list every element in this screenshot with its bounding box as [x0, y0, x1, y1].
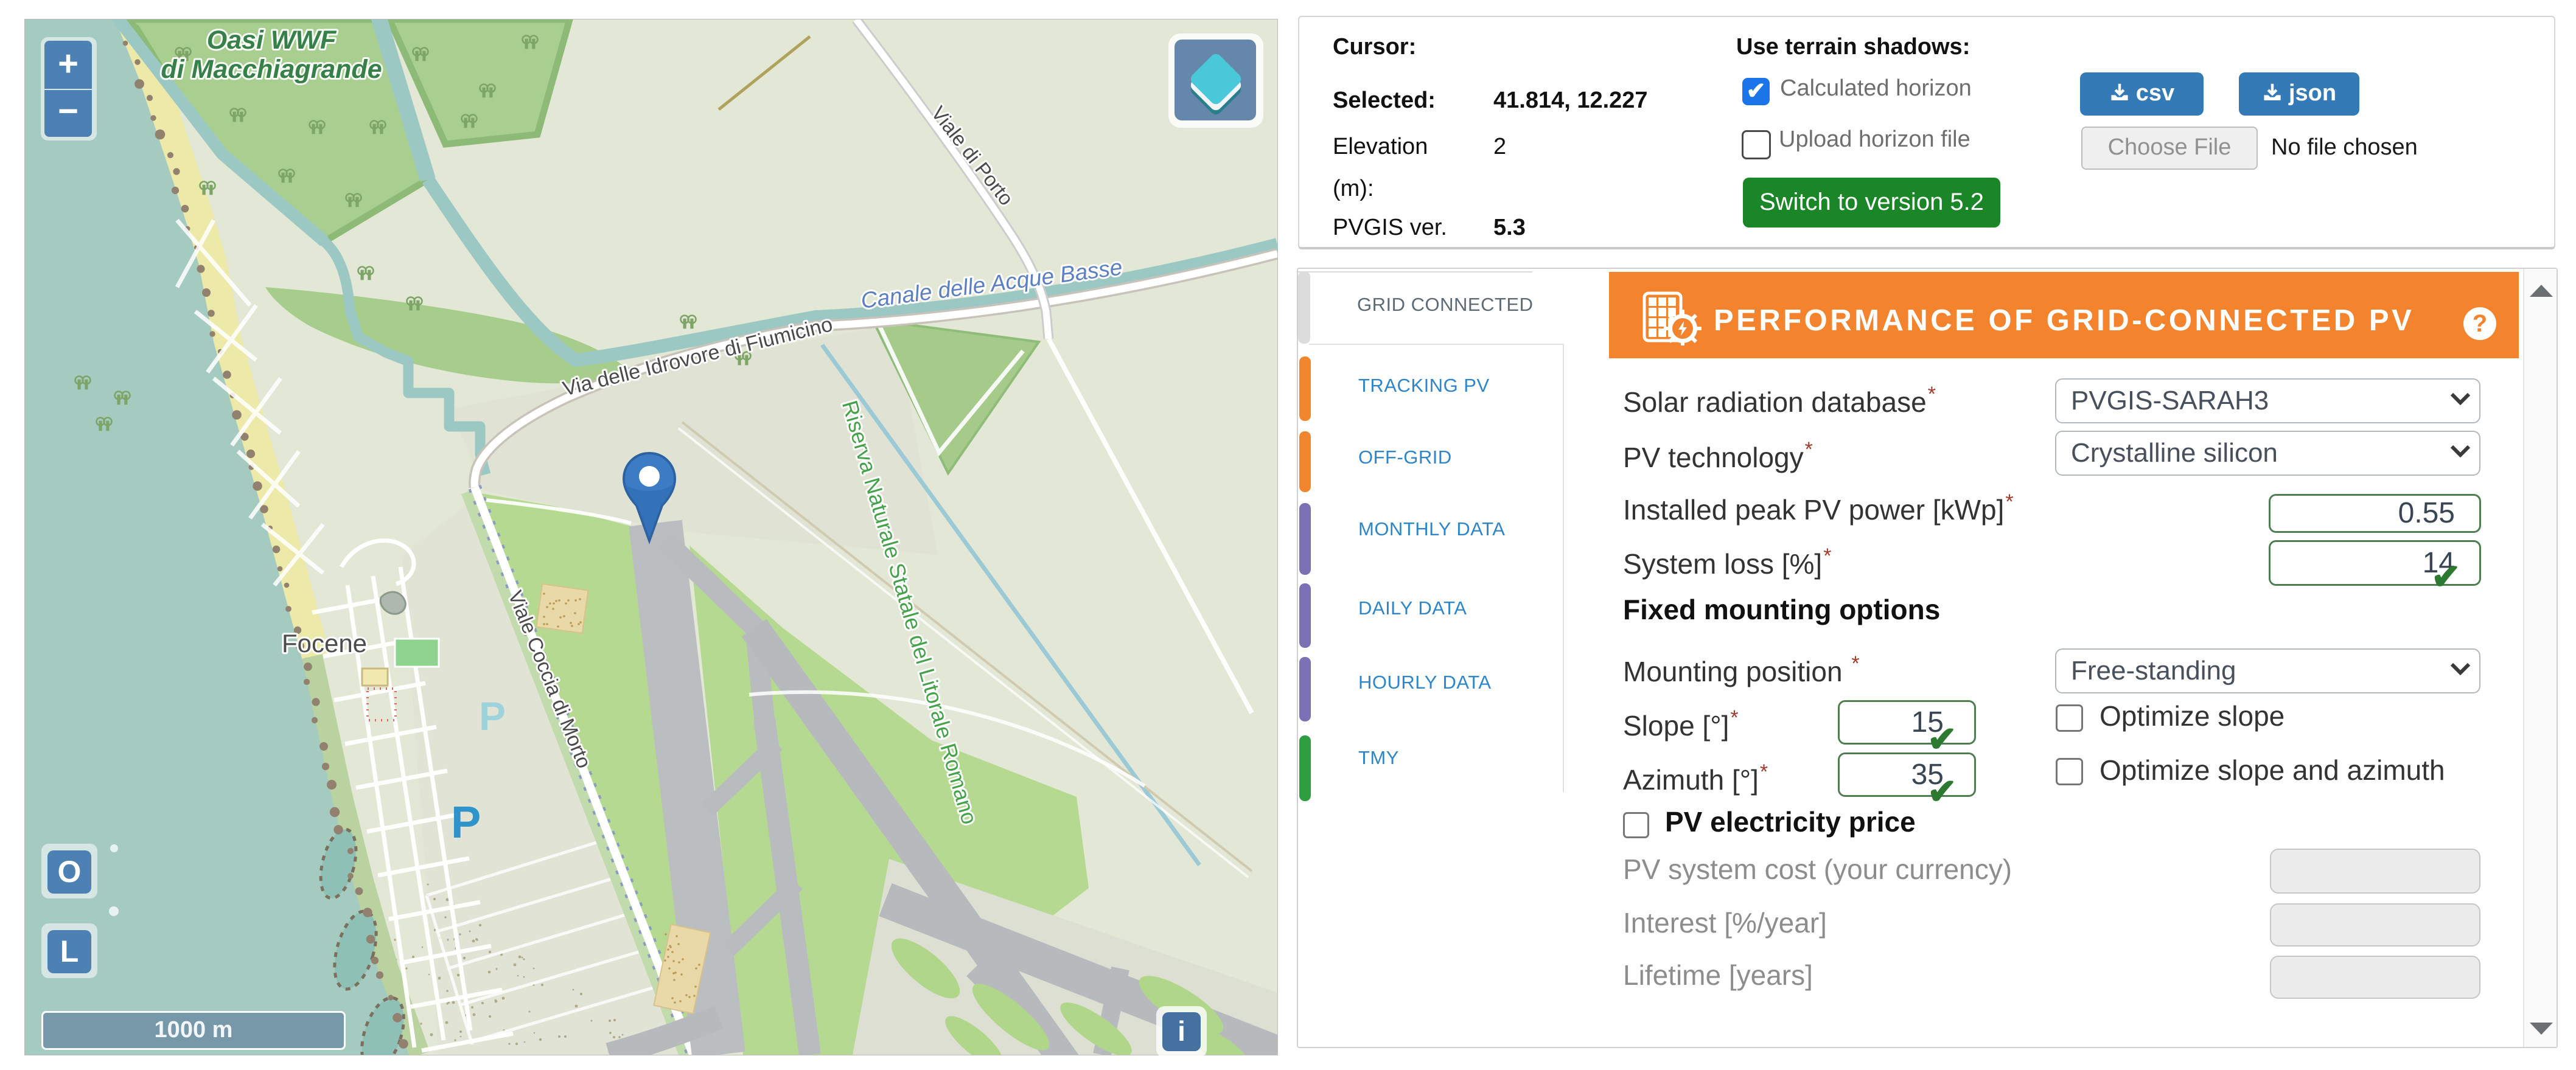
svg-text:P: P — [451, 797, 481, 847]
svg-text:Focene: Focene — [282, 629, 367, 658]
svg-text:Oasi WWF: Oasi WWF — [207, 26, 337, 55]
svg-text:P: P — [479, 693, 506, 738]
svg-text:di Macchiagrande: di Macchiagrande — [161, 55, 382, 84]
